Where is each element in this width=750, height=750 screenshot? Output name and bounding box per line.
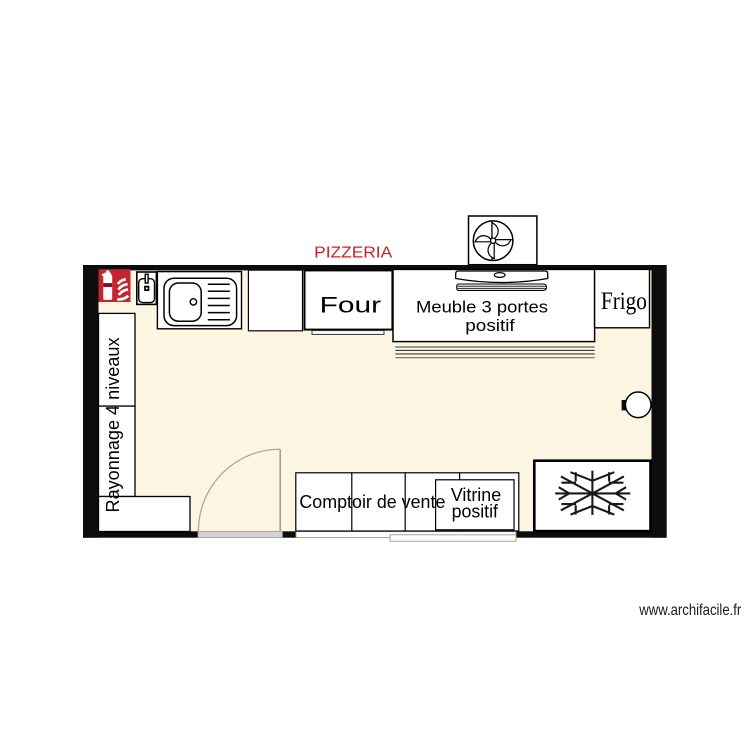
svg-text:positif: positif [452,502,499,522]
svg-text:positif: positif [465,316,515,335]
svg-text:Comptoir de vente: Comptoir de vente [299,492,445,512]
svg-text:PIZZERIA: PIZZERIA [314,244,393,261]
svg-text:Four: Four [320,292,382,317]
svg-text:www.archifacile.fr: www.archifacile.fr [638,602,741,619]
svg-text:Rayonnage 4 niveaux: Rayonnage 4 niveaux [103,338,123,513]
svg-text:Frigo: Frigo [601,286,647,315]
svg-text:Meuble 3 portes: Meuble 3 portes [416,297,548,316]
